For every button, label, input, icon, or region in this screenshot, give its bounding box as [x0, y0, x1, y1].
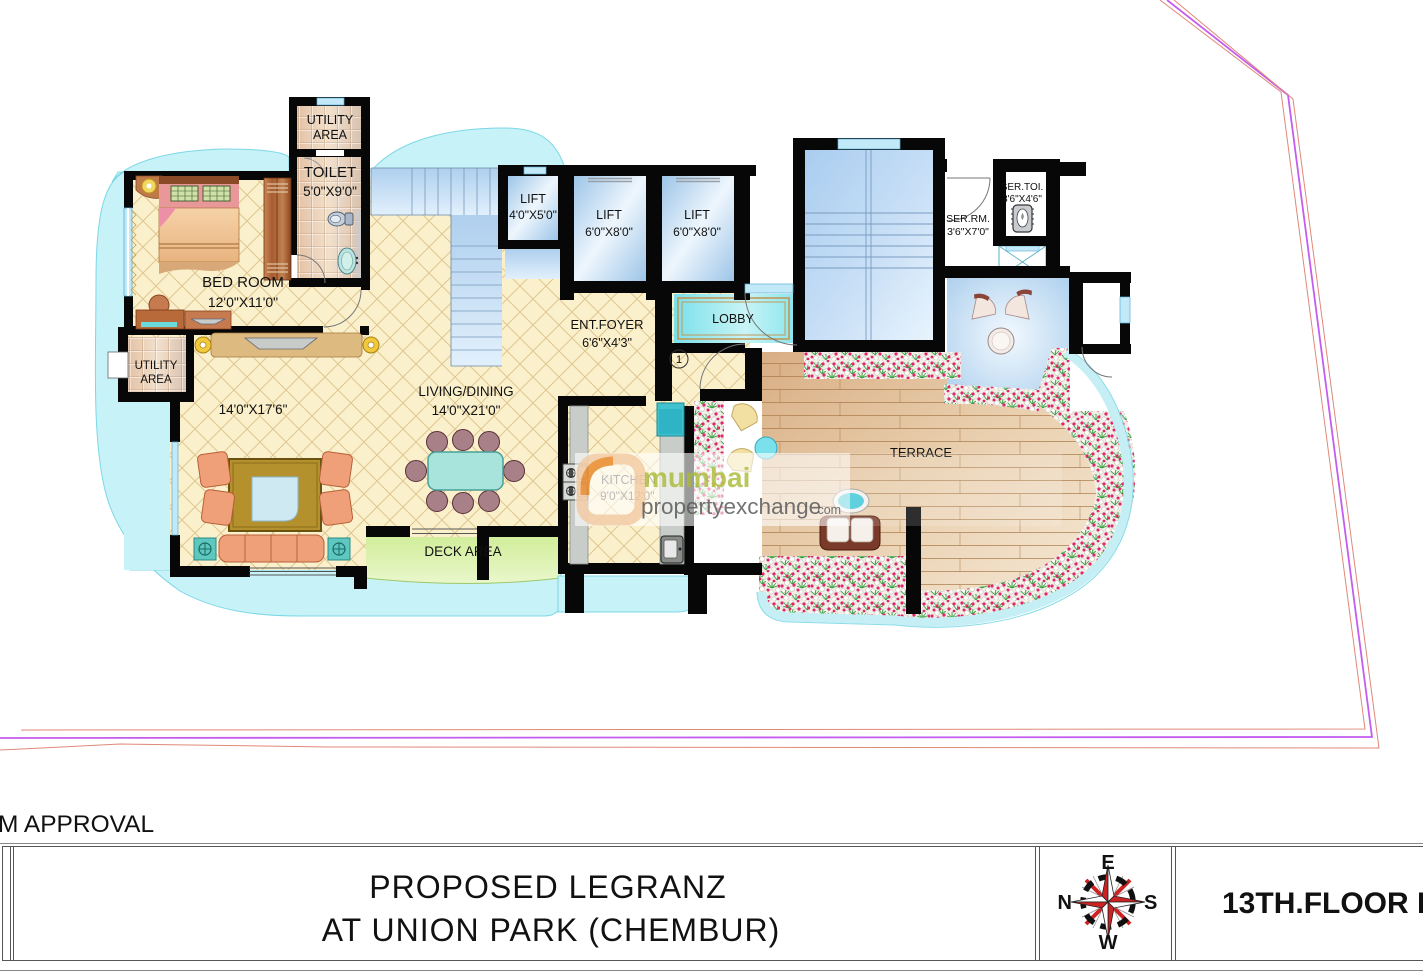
svg-text:M APPROVAL: M APPROVAL	[0, 811, 154, 838]
svg-text:5'0"X9'0": 5'0"X9'0"	[303, 184, 357, 199]
svg-text:LIFT: LIFT	[596, 208, 622, 222]
svg-text:6'0"X8'0": 6'0"X8'0"	[673, 225, 721, 239]
svg-text:AREA: AREA	[140, 374, 172, 386]
svg-text:3'6"X7'0": 3'6"X7'0"	[947, 226, 989, 238]
svg-text:ENT.FOYER: ENT.FOYER	[571, 317, 644, 332]
svg-text:13TH.FLOOR PLAN: 13TH.FLOOR PLAN	[1222, 887, 1423, 920]
svg-text:14'0"X21'0": 14'0"X21'0"	[432, 403, 501, 418]
svg-text:AREA: AREA	[313, 128, 348, 142]
svg-text:.com: .com	[814, 503, 841, 517]
svg-text:LIVING/DINING: LIVING/DINING	[418, 384, 513, 399]
svg-text:mumbai: mumbai	[643, 462, 750, 493]
svg-text:LIFT: LIFT	[684, 208, 710, 222]
svg-text:UTILITY: UTILITY	[135, 360, 178, 372]
svg-text:E: E	[1101, 852, 1114, 874]
svg-text:12'0"X11'0": 12'0"X11'0"	[208, 294, 278, 310]
svg-text:propertyexchange: propertyexchange	[641, 494, 821, 519]
svg-text:1: 1	[676, 354, 682, 366]
svg-text:S: S	[1144, 892, 1157, 914]
svg-text:N: N	[1058, 892, 1072, 914]
svg-text:DECK AREA: DECK AREA	[424, 544, 501, 559]
svg-text:6'0"X8'0": 6'0"X8'0"	[585, 225, 633, 239]
svg-text:W: W	[1099, 932, 1118, 954]
svg-text:LIFT: LIFT	[520, 192, 546, 206]
svg-text:14'0"X17'6": 14'0"X17'6"	[219, 402, 288, 417]
svg-text:6'6"X4'3": 6'6"X4'3"	[582, 336, 632, 350]
svg-text:UTILITY: UTILITY	[307, 113, 354, 127]
svg-text:3'6"X4'6": 3'6"X4'6"	[1002, 194, 1042, 205]
svg-text:PROPOSED LEGRANZ: PROPOSED LEGRANZ	[369, 869, 726, 905]
svg-text:LOBBY: LOBBY	[712, 312, 754, 326]
svg-text:AT UNION PARK (CHEMBUR): AT UNION PARK (CHEMBUR)	[322, 912, 781, 948]
svg-text:TOILET: TOILET	[304, 164, 356, 181]
svg-text:SER.TOI.: SER.TOI.	[1001, 182, 1044, 193]
svg-text:SER.RM.: SER.RM.	[946, 213, 990, 225]
svg-text:BED ROOM: BED ROOM	[202, 274, 284, 291]
svg-text:4'0"X5'0": 4'0"X5'0"	[509, 208, 557, 222]
